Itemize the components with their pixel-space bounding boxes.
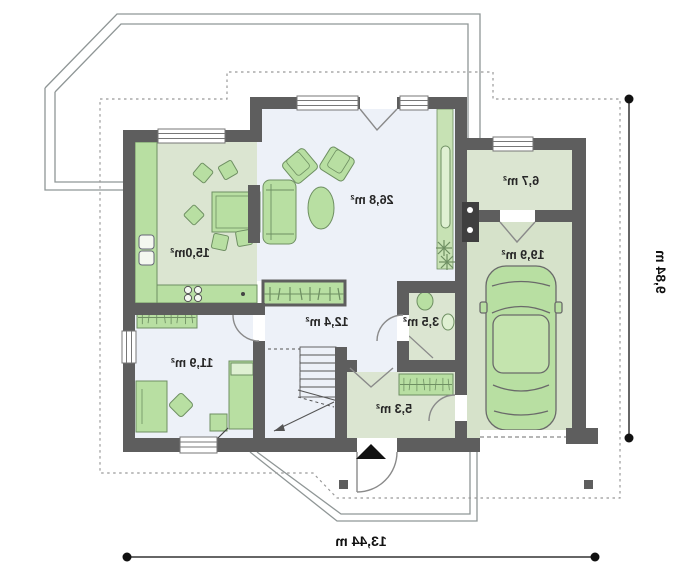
wall-bedroom-top [123, 303, 263, 315]
label-kitchen: 15,0m² [170, 246, 210, 260]
desk [136, 381, 167, 432]
kitchen-sink [139, 235, 154, 249]
window-garage [493, 137, 533, 151]
wall-sofa-stub [248, 185, 260, 243]
dimension-width-label: 13,44 m [335, 533, 386, 549]
entrance-porch-outline [250, 452, 477, 521]
label-garage: 19,9 m² [501, 248, 544, 262]
nightstand [210, 414, 227, 431]
wall-exterior-left [123, 130, 135, 452]
wall-stair-right [335, 347, 347, 438]
toilet-bowl [417, 292, 433, 310]
floor-passage [347, 281, 397, 372]
wall-bottom [123, 438, 482, 452]
window-bedroom-bottom [180, 437, 217, 453]
car-icon [480, 266, 562, 430]
porch-post [339, 480, 348, 489]
label-hall: 12,4 m² [305, 315, 348, 329]
wash-basin [442, 314, 454, 330]
label-living-room: 26,8 m² [350, 193, 393, 207]
kitchen-counter-left [135, 142, 157, 303]
label-vestibule: 5,3 m² [376, 402, 412, 416]
dimension-depth: 9,84 m [625, 95, 670, 443]
wall-garage-corner [566, 428, 598, 444]
wall-garage-right [572, 138, 586, 430]
wall-wc-bottom [397, 360, 455, 372]
boiler-unit [462, 202, 479, 242]
window-living-1 [297, 96, 358, 110]
label-utility: 6,7 m² [503, 174, 539, 188]
hall-closet [263, 281, 345, 305]
window-bedroom-left [122, 331, 136, 363]
dimension-depth-label: 9,84 m [653, 250, 669, 294]
label-wc: 3,5 m² [403, 315, 439, 329]
dimension-width: 13,44 m [123, 533, 600, 562]
porch-post [584, 480, 593, 489]
window-kitchen-top [158, 129, 225, 143]
wall-wc-top [397, 281, 455, 293]
coffee-table [308, 187, 334, 229]
floor-plan-drawing: 26,8 m² 15,0m² 6,7 m² 19,9 m² 12,4 m² 3,… [0, 0, 700, 576]
label-bedroom: 11,9 m² [171, 356, 213, 370]
window-living-2 [400, 96, 428, 110]
floor-plan-page: 26,8 m² 15,0m² 6,7 m² 19,9 m² 12,4 m² 3,… [0, 0, 700, 576]
radiator [441, 146, 450, 228]
